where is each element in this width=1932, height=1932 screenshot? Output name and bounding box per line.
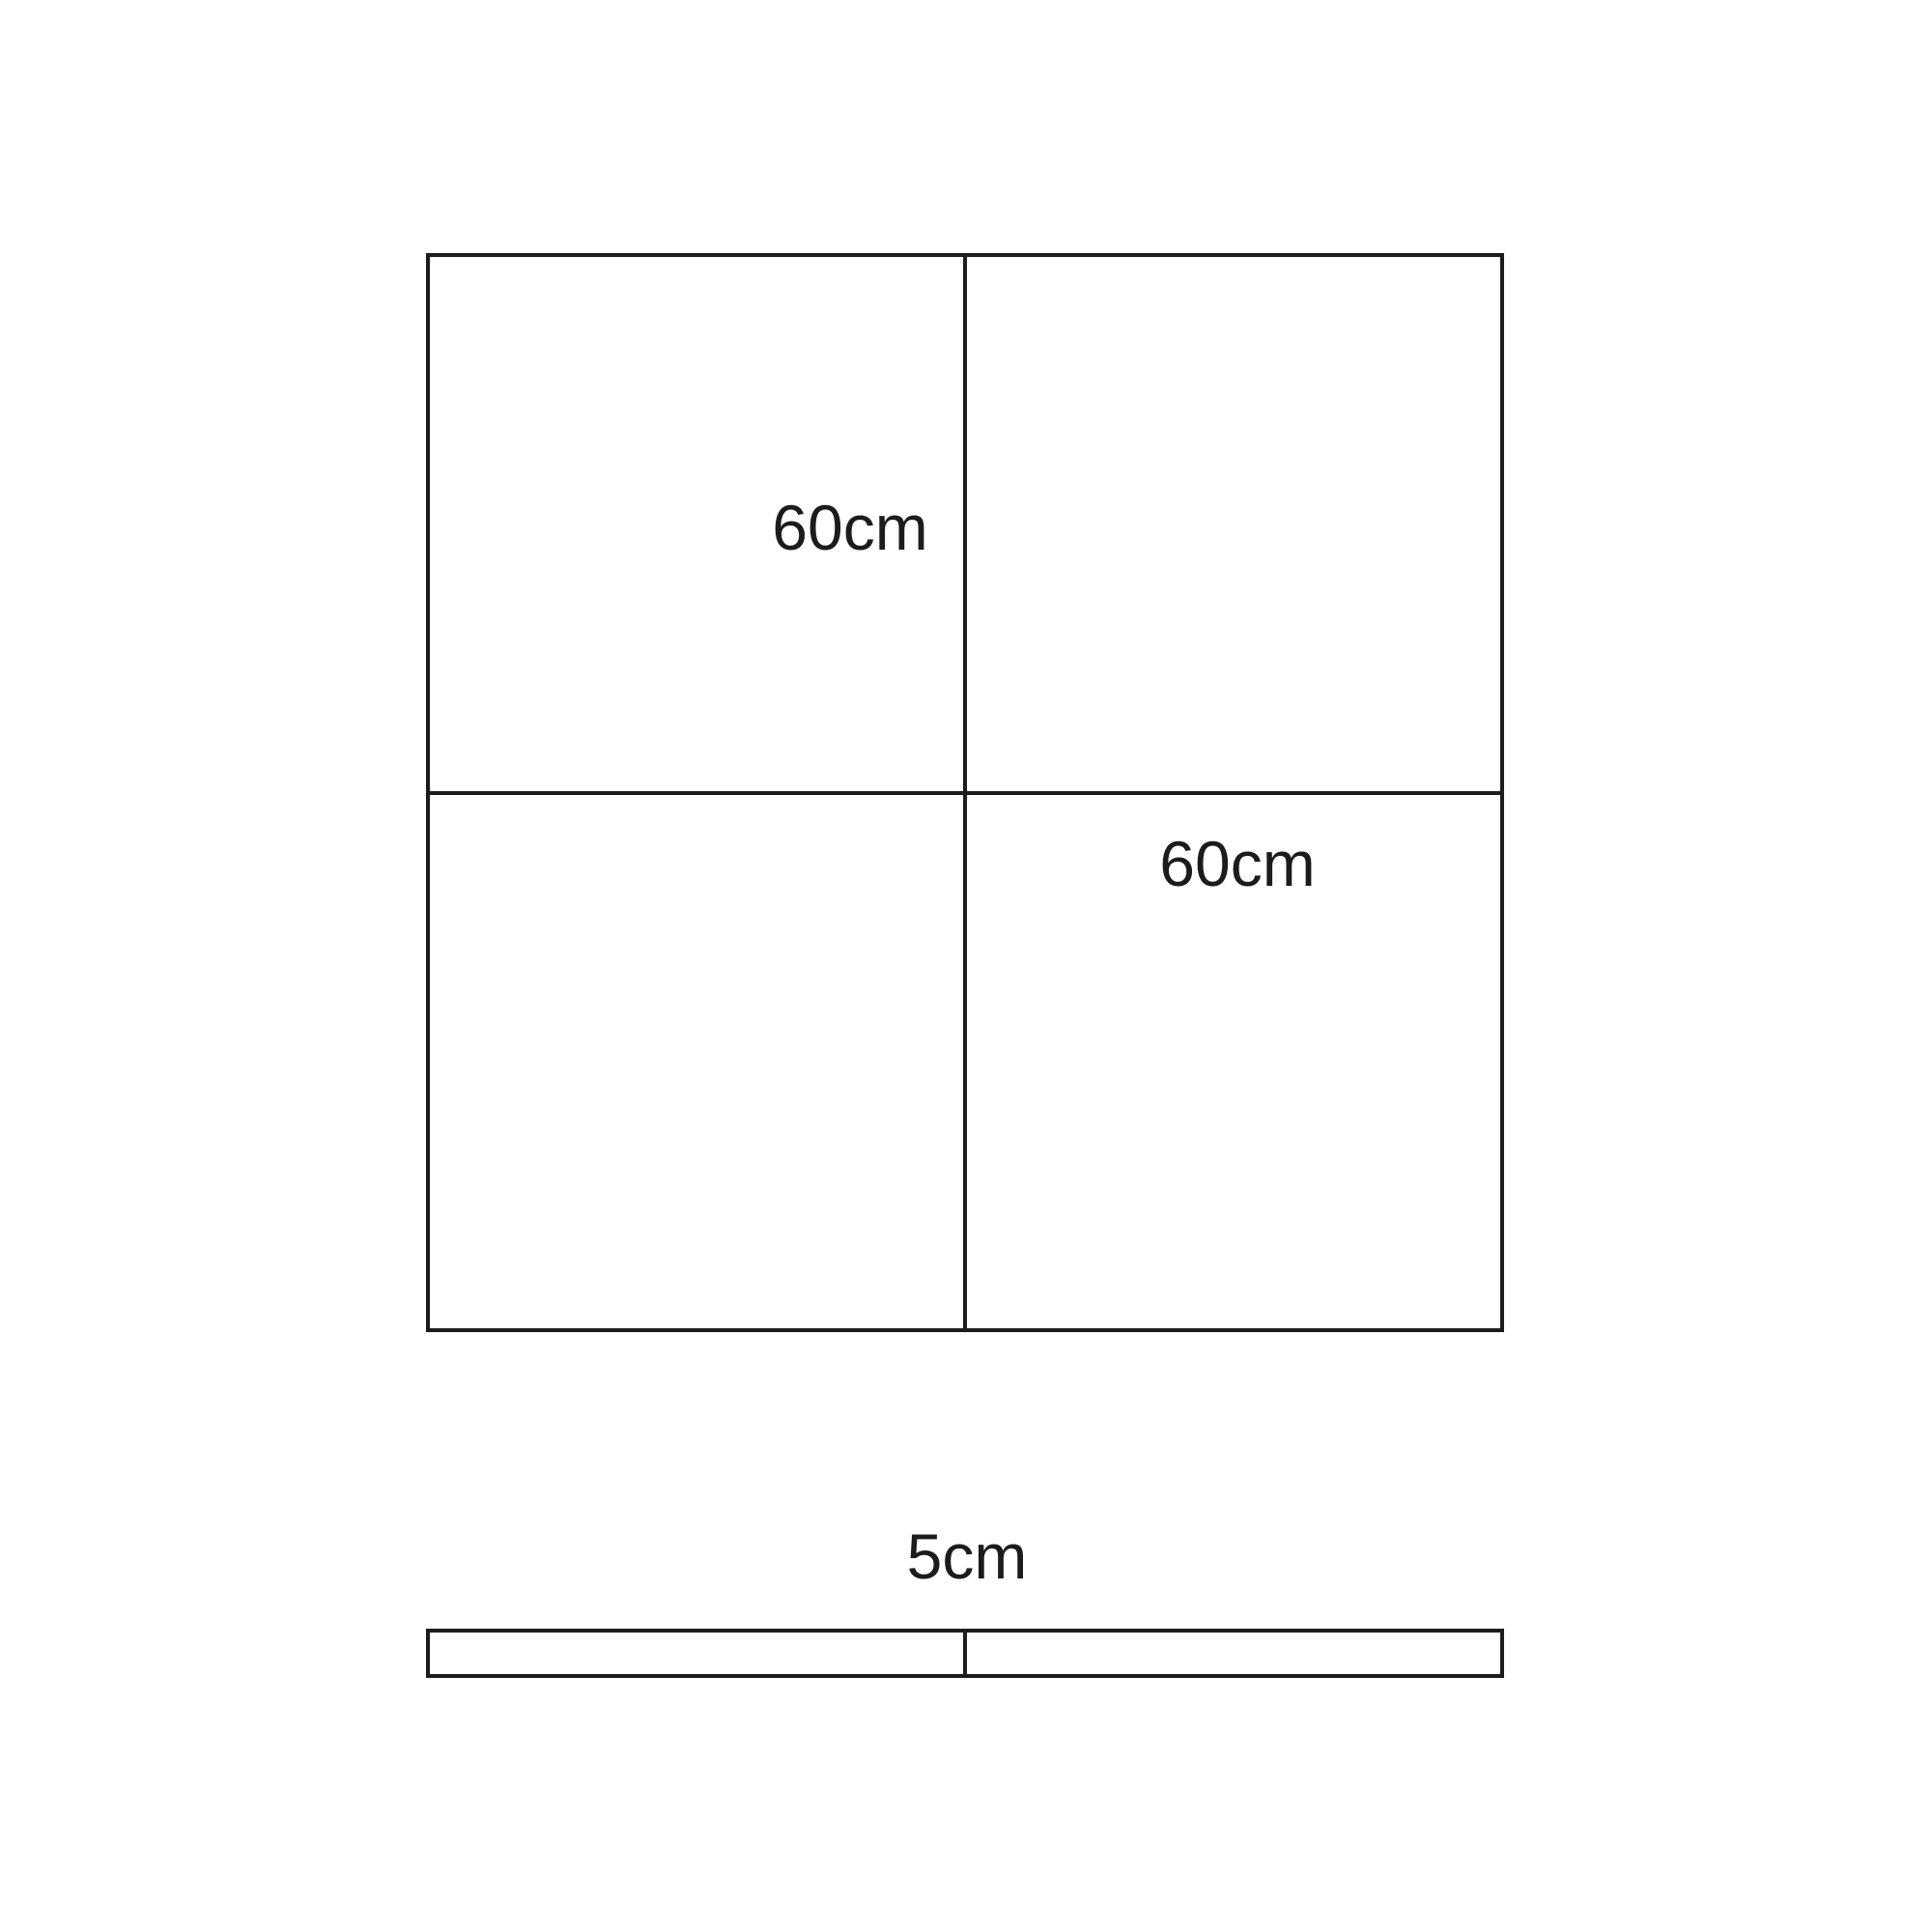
- divided-strip: [426, 1629, 1504, 1678]
- dimension-label-top-left-quadrant: 60cm: [772, 496, 927, 559]
- dimension-label-strip: 5cm: [907, 1524, 1028, 1588]
- strip-center-divider-line: [963, 1633, 967, 1674]
- diagram-canvas: 60cm 60cm 5cm: [0, 0, 1932, 1932]
- square-horizontal-divider-line: [430, 791, 1500, 795]
- dimension-label-bottom-right-quadrant: 60cm: [1159, 832, 1315, 895]
- divided-square: [426, 253, 1504, 1332]
